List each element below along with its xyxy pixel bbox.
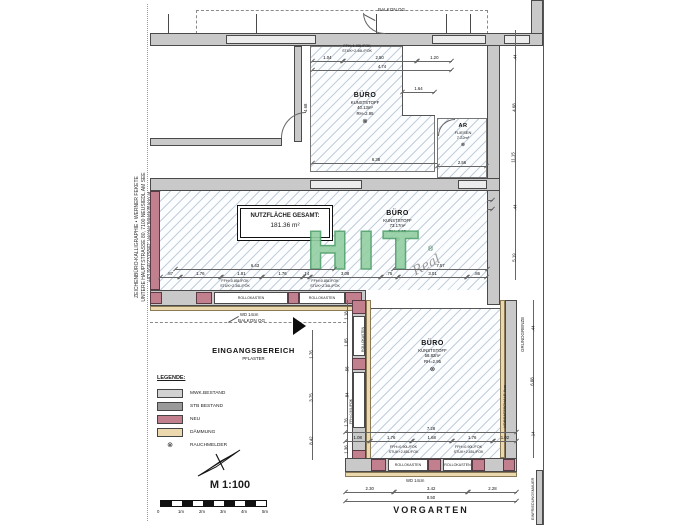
stuk-line: STUK+2.85L/FOK — [376, 450, 431, 455]
wall-new-block — [503, 459, 515, 471]
dim-label: .84 — [345, 393, 350, 399]
scale-segment — [172, 501, 183, 506]
dim-segment: .75 — [381, 269, 398, 278]
dim-segment: 3.08 — [310, 269, 381, 278]
wall-new-block — [196, 292, 212, 304]
legend-item-label: DÄMMUNG — [190, 430, 215, 435]
room-name: BÜRO — [320, 92, 410, 100]
room-height: RH=2.95 — [395, 359, 470, 364]
scale-ticks: 01m2m3m4m5m — [160, 509, 270, 517]
dim-chain-entry: 1.763.758.42 — [303, 330, 313, 460]
dim-room1-height: 4.68 — [303, 104, 308, 112]
property-boundary-line — [543, 0, 544, 525]
registered-mark: ® — [428, 246, 433, 253]
dim-vorgarten-total: 8.50 — [345, 493, 517, 502]
dim-label: .44 — [513, 205, 518, 211]
roller-shutter-box: ROLLOKASTEN — [214, 292, 288, 304]
window-opening — [310, 180, 362, 189]
furring-label: VORSATZSCHALE 6cm — [502, 385, 507, 428]
balcony-top-label: BALKON OG — [378, 7, 405, 12]
stuk-line: STUK+2.36L/FOK — [290, 284, 360, 289]
room-height: RH=2.95 — [320, 111, 410, 116]
facade-mullion — [446, 14, 447, 33]
room-name: BÜRO — [360, 210, 435, 218]
scale-segment — [193, 501, 204, 506]
dim-label: 1.18 — [343, 312, 348, 320]
scale-tick-label: 3m — [220, 509, 226, 514]
dim-label: 4.68 — [511, 103, 516, 111]
dim-segment: 3.01 — [398, 269, 467, 278]
room-name: AR — [440, 122, 486, 130]
dim-label: .14 — [531, 431, 536, 437]
stuk-line: STUK+2.85L/FOK — [441, 450, 496, 455]
wall-interior-horizontal — [150, 138, 282, 146]
stuk-line: STUK+2.36L/FOK — [200, 284, 270, 289]
legend-swatch — [157, 428, 183, 437]
dim-segment: 2.28 — [468, 484, 517, 493]
wall-new-block — [352, 300, 366, 314]
wall-new-left — [150, 191, 160, 290]
north-arrow-icon — [194, 446, 246, 480]
scale-segment — [245, 501, 256, 506]
dim-label: 6.08 — [529, 377, 534, 385]
dim-segment: 1.02 — [493, 433, 517, 442]
dim-segment: 1.81 — [221, 269, 263, 278]
dim-segment: 1.76 — [370, 433, 411, 442]
legend-item: DÄMMUNG — [157, 428, 225, 437]
dim-room1-width: 6.38 — [312, 155, 440, 164]
legend-items: MWK.BESTANDSTB BESTANDNEUDÄMMUNG — [157, 389, 225, 441]
scale-tick-label: 1m — [178, 509, 184, 514]
dim-segment: 1.68 — [412, 433, 452, 442]
boundary-wall — [536, 470, 543, 525]
dim-label: 3.75 — [308, 393, 313, 401]
scale-tick-label: 4m — [241, 509, 247, 514]
legend-title: LEGENDE: — [157, 375, 185, 381]
facade-mullion — [470, 14, 471, 33]
room-buero-top-label: BÜRO KUNSTSTOFF 40.13m² RH=2.95 ⊗ — [320, 92, 410, 125]
scale-segment — [182, 501, 193, 506]
scale-tick-label: 5m — [262, 509, 268, 514]
scale-bar — [160, 500, 267, 507]
smoke-detector-icon: ⊗ — [440, 142, 486, 149]
entrance-line1: EINGANGSBEREICH — [196, 346, 311, 355]
window-note-bottom-b: FFH=0.90L/FOK STUK+2.85L/FOK — [441, 445, 496, 454]
balcony-mid-label: BALKON OG — [238, 318, 265, 323]
dim-chain-top-window: 1.042.501.20 — [312, 53, 452, 62]
dim-chain-right-lower: .446.08.14 — [524, 300, 534, 458]
dim-label: .56 — [345, 366, 350, 372]
room-area: 7.22m² — [440, 135, 486, 140]
window-note-mid-b: FFH=0.85L/FOK STUK+2.36L/FOK — [290, 279, 360, 288]
facade-mullion — [168, 14, 169, 33]
scale-tick-label: 2m — [199, 509, 205, 514]
scale-segment — [256, 501, 267, 506]
door-swing — [281, 112, 306, 138]
wall-new-block — [428, 459, 441, 471]
room-name: BÜRO — [395, 340, 470, 348]
boundary-wall-label: EINFRIEDUNGSMAUER — [531, 478, 535, 520]
scale-segment — [235, 501, 246, 506]
legend-swatch — [157, 415, 183, 424]
window-note-bottom-a: FFH=0.90L/FOK STUK+2.85L/FOK — [376, 445, 431, 454]
legend-swatch — [157, 402, 183, 411]
roller-shutter-box-vertical — [353, 372, 365, 428]
room-ar-label: AR FLIESEN 7.22m² ⊗ — [440, 122, 486, 149]
roller-shutter-label-vertical: ROLLOKASTEN — [361, 327, 365, 352]
dim-segment: 1.76 — [452, 433, 493, 442]
roller-shutter-box: ROLLOKASTEN — [443, 459, 472, 471]
window-opening — [458, 180, 487, 189]
window-note-top: FFH=1.03L/FOK STUK+2.46L/FOK — [312, 44, 402, 53]
wall-new-block — [352, 358, 366, 370]
dim-segment: 1.76 — [180, 269, 221, 278]
scale-label: M 1:100 — [190, 479, 270, 491]
window-note-vertical: FFH=0.90L/FOK — [349, 399, 353, 424]
wall-new-block — [288, 292, 299, 304]
wall-new-block — [371, 459, 386, 471]
legend-item-label: STB BESTAND — [190, 404, 223, 409]
legend-swatch — [157, 389, 183, 398]
legend-item: NEU — [157, 415, 225, 424]
architect-line2: UNTERE HAUPTSTRASSE 80, 7100 NEUSIEDL AM… — [141, 106, 148, 368]
smoke-detector-icon: ⊗ — [157, 441, 183, 449]
dim-segment: 8.50 — [345, 493, 517, 502]
dim-chain-mid-bottom: .871.761.811.76.143.08.753.01.86 — [160, 269, 487, 278]
dim-segment: 2.30 — [345, 484, 394, 493]
dim-label: 1.76 — [308, 350, 313, 358]
insulation-strip — [345, 472, 517, 477]
facade-mullion — [256, 14, 257, 33]
dim-segment: 2.50 — [343, 53, 417, 62]
legend-item-label: MWK.BESTAND — [190, 391, 225, 396]
scale-segment — [214, 501, 225, 506]
dim-segment: 1.76 — [262, 269, 303, 278]
dim-segment: 1.04 — [312, 53, 343, 62]
window-opening — [226, 35, 316, 44]
entrance-line2: PFLASTER — [196, 356, 311, 361]
architect-line1: ZEICHENBÜRO-KALLIGRAPHIE • WERNER FEKETE — [134, 106, 141, 368]
dim-segment: 1.20 — [417, 53, 452, 62]
room-buero-bottom-label: BÜRO KUNSTSTOFF 58.82m² RH=2.95 ⊗ — [395, 340, 470, 373]
dim-chain-bottom-windows: 1.081.761.681.761.02 — [345, 433, 517, 442]
window-opening — [432, 35, 486, 44]
dim-segment: 2.56 — [437, 158, 487, 167]
dim-label: 8.42 — [308, 437, 313, 445]
dim-label: 11.15 — [510, 152, 515, 162]
dim-label: 5.19 — [511, 253, 516, 261]
usable-area-title: NUTZFLÄCHE GESAMT: — [238, 213, 332, 219]
dim-label: .44 — [513, 55, 518, 61]
legend-item-label: NEU — [190, 417, 200, 422]
dim-segment: 4.74 — [312, 62, 452, 71]
wall-thickness-note: WD 14cm — [240, 312, 258, 317]
dim-chain-vorgarten: 2.303.422.28 — [345, 484, 517, 493]
dim-segment: 1.08 — [345, 433, 370, 442]
dim-segment: 7.28 — [345, 424, 517, 433]
dim-segment: .87 — [160, 269, 180, 278]
dim-top-window-total: 4.74 — [312, 62, 452, 71]
dim-segment: 6.38 — [312, 155, 440, 164]
floor-plan-sheet: ZEICHENBÜRO-KALLIGRAPHIE • WERNER FEKETE… — [0, 0, 700, 525]
dim-segment: .86 — [467, 269, 487, 278]
wall-new-block — [150, 292, 162, 304]
dim-bottom-total: 7.28 — [345, 424, 517, 433]
wall-new-block — [472, 459, 485, 471]
balcony-top-outline — [196, 10, 488, 34]
smoke-detector-icon: ⊗ — [395, 366, 470, 373]
legend-item: STB BESTAND — [157, 402, 225, 411]
dim-label: 1.05 — [343, 338, 348, 346]
scale-tick-label: 0 — [157, 509, 159, 514]
smoke-detector-icon: ⊗ — [320, 118, 410, 125]
roller-shutter-box: ROLLOKASTEN — [388, 459, 428, 471]
insulation-strip — [150, 306, 366, 311]
dim-chain-right-upper: .444.6811.15.445.19 — [506, 30, 516, 280]
dim-label: .44 — [531, 326, 536, 332]
front-garden-label: VORGARTEN — [345, 505, 517, 515]
entrance-area-label: EINGANGSBEREICH PFLASTER — [196, 346, 311, 361]
legend-item: MWK.BESTAND — [157, 389, 225, 398]
wall-thickness-note: WD 14cm — [406, 478, 424, 483]
window-note-mid-a: FFH=0.85L/FOK STUK+2.36L/FOK — [200, 279, 270, 288]
scale-segment — [203, 501, 214, 506]
dim-segment: 3.42 — [394, 484, 468, 493]
dim-ar-width: 2.56 — [437, 158, 487, 167]
scale-segment — [161, 501, 172, 506]
scale-segment — [224, 501, 235, 506]
wall-top-right-stub — [531, 0, 543, 34]
dim-label: 1.36 — [343, 445, 348, 453]
